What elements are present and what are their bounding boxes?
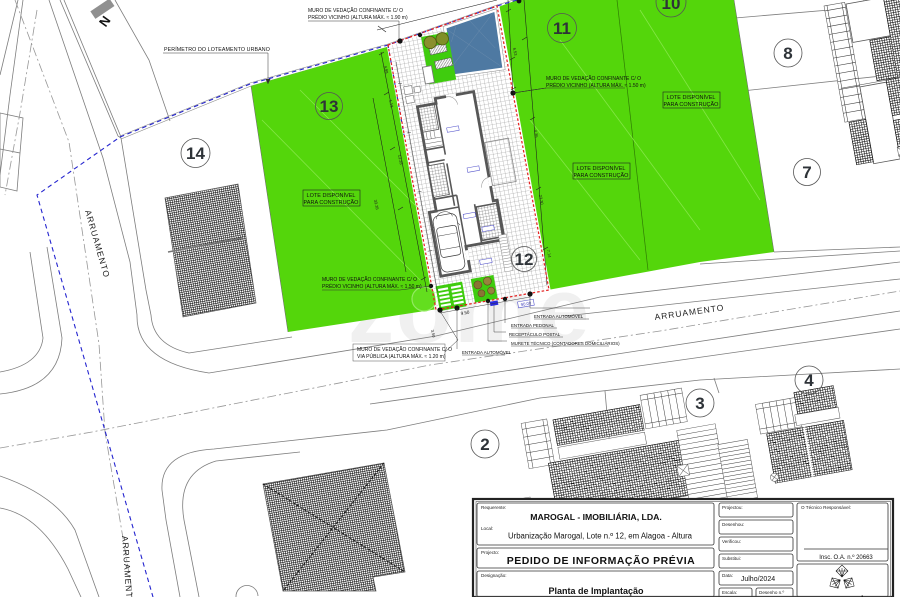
svg-text:PARA CONSTRUÇÃO: PARA CONSTRUÇÃO bbox=[574, 172, 630, 179]
svg-text:14: 14 bbox=[186, 144, 205, 163]
svg-text:PARA CONSTRUÇÃO: PARA CONSTRUÇÃO bbox=[304, 199, 360, 206]
svg-text:4: 4 bbox=[804, 371, 814, 390]
svg-text:Substitui:: Substitui: bbox=[722, 556, 741, 561]
svg-text:13: 13 bbox=[320, 97, 339, 116]
svg-text:Desenho n.º: Desenho n.º bbox=[759, 590, 784, 595]
svg-text:12: 12 bbox=[515, 250, 534, 269]
svg-text:PRÉDIO VICINHO (ALTURA MÁX. ≈: PRÉDIO VICINHO (ALTURA MÁX. ≈ 1.90 m) bbox=[308, 14, 408, 21]
svg-text:Requerente:: Requerente: bbox=[481, 505, 506, 510]
svg-text:2: 2 bbox=[480, 435, 489, 454]
svg-text:Verificou:: Verificou: bbox=[722, 539, 741, 544]
svg-text:MURO DE VEDAÇÃO CONFINANTE C/: MURO DE VEDAÇÃO CONFINANTE C/ O bbox=[357, 346, 452, 353]
svg-text:MURO DE VEDAÇÃO CONFINANTE C/: MURO DE VEDAÇÃO CONFINANTE C/ O bbox=[308, 7, 403, 14]
svg-text:Projecto:: Projecto: bbox=[481, 550, 499, 555]
svg-text:3: 3 bbox=[695, 394, 704, 413]
svg-text:MURO DE VEDAÇÃO CONFINANTE C/: MURO DE VEDAÇÃO CONFINANTE C/ O bbox=[322, 276, 417, 283]
svg-text:Planta de Implantação: Planta de Implantação bbox=[548, 586, 644, 596]
svg-text:Insc. O.A. n.º 20663: Insc. O.A. n.º 20663 bbox=[819, 554, 873, 561]
svg-text:PARA CONSTRUÇÃO: PARA CONSTRUÇÃO bbox=[664, 101, 720, 108]
svg-text:ENTRADA PEDONAL: ENTRADA PEDONAL bbox=[511, 323, 554, 328]
svg-text:Julho/2024: Julho/2024 bbox=[741, 576, 775, 583]
svg-text:LOTE DISPONÍVEL: LOTE DISPONÍVEL bbox=[577, 165, 626, 172]
svg-text:Urbanização Marogal, Lote n.º: Urbanização Marogal, Lote n.º 12, em Ala… bbox=[508, 532, 693, 541]
svg-text:Local:: Local: bbox=[481, 526, 493, 531]
svg-text:Escala:: Escala: bbox=[722, 590, 737, 595]
svg-text:PERÍMETRO DO LOTEAMENTO URBANO: PERÍMETRO DO LOTEAMENTO URBANO bbox=[164, 46, 270, 53]
svg-text:LOTE DISPONÍVEL: LOTE DISPONÍVEL bbox=[667, 94, 716, 101]
svg-text:RECEPTÁCULO POSTAL: RECEPTÁCULO POSTAL bbox=[509, 332, 561, 337]
svg-text:LOTE DISPONÍVEL: LOTE DISPONÍVEL bbox=[307, 192, 356, 199]
svg-text:PEDIDO DE INFORMAÇÃO PRÉVIA: PEDIDO DE INFORMAÇÃO PRÉVIA bbox=[507, 554, 696, 567]
svg-text:MURO DE VEDAÇÃO CONFINANTE C/: MURO DE VEDAÇÃO CONFINANTE C/ O bbox=[546, 75, 641, 82]
svg-text:VIA PÚBLICA (ALTURA MÁX. ≈ 1.2: VIA PÚBLICA (ALTURA MÁX. ≈ 1.20 m) bbox=[357, 353, 446, 360]
svg-text:Data:: Data: bbox=[722, 573, 733, 578]
svg-text:O Técnico Responsável:: O Técnico Responsável: bbox=[801, 505, 851, 510]
svg-text:ENTRADA AUTOMÓVEL: ENTRADA AUTOMÓVEL bbox=[534, 314, 584, 319]
svg-text:Designação:: Designação: bbox=[481, 573, 507, 578]
svg-text:11: 11 bbox=[553, 19, 571, 38]
svg-text:10: 10 bbox=[662, 0, 681, 13]
svg-text:7: 7 bbox=[802, 163, 811, 182]
svg-text:Desenhou:: Desenhou: bbox=[722, 522, 744, 527]
svg-text:MAROGAL - IMOBILIÁRIA, LDA.: MAROGAL - IMOBILIÁRIA, LDA. bbox=[530, 512, 662, 522]
svg-text:8: 8 bbox=[783, 44, 792, 63]
svg-text:ENTRADA AUTOMÓVEL: ENTRADA AUTOMÓVEL bbox=[462, 350, 512, 355]
svg-text:Projectou:: Projectou: bbox=[722, 505, 743, 510]
svg-text:MURETE TÉCNICO (CONTADORES DOM: MURETE TÉCNICO (CONTADORES DOMICILIÁRIOS… bbox=[511, 341, 620, 346]
